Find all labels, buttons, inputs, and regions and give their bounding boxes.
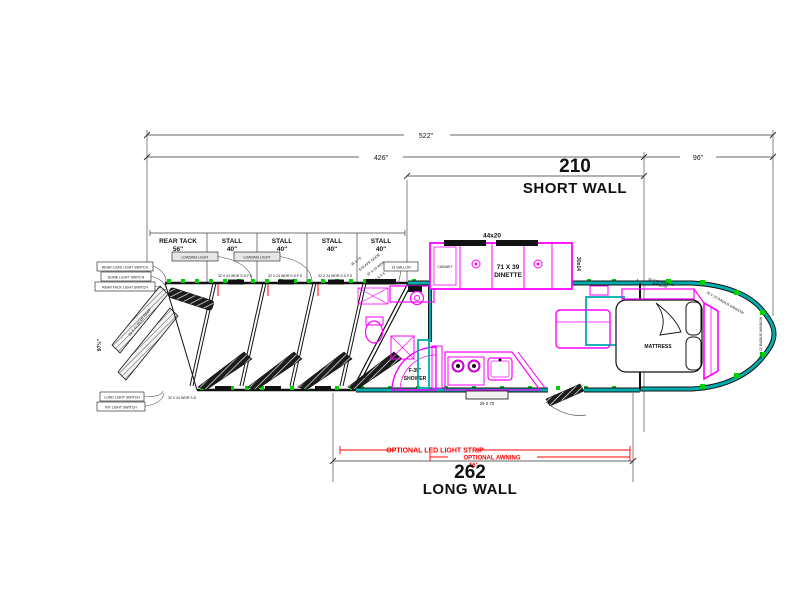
long-wall-value: 262 xyxy=(454,462,486,483)
nose-tip-window-note: 26 X 22 RADIUS WINDOW xyxy=(759,316,763,359)
bed-area xyxy=(616,289,718,379)
stall-header-labels: REAR TACK 56" STALL 40" STALL 40" STALL … xyxy=(159,238,391,253)
light-callout-label: LOADING LIGHT xyxy=(243,255,271,259)
column-label: STALL xyxy=(322,238,342,245)
column-width: 40" xyxy=(327,246,337,253)
dinette-label-1: 71 X 39 xyxy=(497,264,520,271)
entry-step-label: 29 X 70 xyxy=(480,401,495,406)
long-wall-label: LONG WALL xyxy=(423,481,518,498)
closet-label: CLOSET xyxy=(359,375,374,379)
column-label: STALL xyxy=(371,238,391,245)
water-tank-label: 13 GALLON xyxy=(391,265,411,269)
tie-markers-red xyxy=(218,284,318,296)
short-wall-value: 210 xyxy=(559,156,591,177)
column-width: 40" xyxy=(376,246,386,253)
optional-awning-label: OPTIONAL AWNING xyxy=(464,456,521,462)
stall-window-notes: 32 X 24 WDR S.S.F.S 32 X 24 WDR S.S.F.S … xyxy=(218,274,353,278)
column-label: STALL xyxy=(222,238,242,245)
column-label: STALL xyxy=(272,238,292,245)
trailer-floorplan-svg: 522" 426" 96" 210 SHORT WALL 97½" OPTION… xyxy=(0,0,800,600)
rear-ramp: 32 X 42 REAR RAMP xyxy=(112,286,178,380)
dim-rear-height: 97½" xyxy=(96,338,103,351)
light-callout-label: LOADING LIGHT xyxy=(181,255,209,259)
entry-door xyxy=(546,384,586,415)
column-label: REAR TACK xyxy=(159,238,197,245)
short-wall-label: SHORT WALL xyxy=(523,180,627,197)
optional-led-strip-line xyxy=(340,446,630,454)
shower-label-2: SHOWER xyxy=(404,376,427,382)
stall-divider-pads xyxy=(198,352,402,390)
rear-callouts-bottom: LOAD LIGHT SWITCH INT LIGHT SWITCH 32 X … xyxy=(97,391,197,411)
dim-overall: 522" xyxy=(419,133,434,140)
slide-cabinet-label: CABINET xyxy=(437,265,453,269)
slide-window-label: 30x14 xyxy=(575,257,581,271)
shower-label-1: F-35" xyxy=(409,368,422,374)
callout-label: REAR LOAD LIGHT SWITCH xyxy=(102,265,149,269)
mattress-label: MATTRESS xyxy=(644,344,672,350)
escape-note: 36 X 70 xyxy=(350,256,362,267)
callout-label: DOME LIGHT SWITCH xyxy=(108,275,145,279)
callout-label: LOAD LIGHT SWITCH xyxy=(104,395,140,399)
optional-led-strip-label: OPTIONAL LED LIGHT STRIP xyxy=(386,448,484,455)
sofa-and-closet xyxy=(556,286,624,348)
trailer-floorplan-page: 522" 426" 96" 210 SHORT WALL 97½" OPTION… xyxy=(0,0,800,600)
stall-window-note: 32 X 24 WDR S.S.F.S xyxy=(218,274,253,278)
dinette-label-2: DINETTE xyxy=(494,272,522,279)
stall-window-note: 32 X 24 WDR S.S.F.S xyxy=(268,274,303,278)
rear-window-note: 32 X 24 WDR S.S. xyxy=(168,396,197,400)
rear-callouts-top: REAR LOAD LIGHT SWITCH DOME LIGHT SWITCH… xyxy=(95,262,166,291)
dim-horse-section: 426" xyxy=(374,155,389,162)
callout-label: REAR TACK LIGHT SWITCH xyxy=(102,285,148,289)
slide-size-label: 44x20 xyxy=(483,233,501,240)
escape-door-notes: 36 X 70 ESCAPE DOOR 32 X 24 WDR S.S.F.S xyxy=(350,253,386,282)
stall-window-note: 32 X 24 WDR S.S.F.S xyxy=(318,274,353,278)
dim-gooseneck: 96" xyxy=(693,155,704,162)
rear-tack-saddle-rack xyxy=(168,287,215,311)
wall-markers-green xyxy=(167,281,638,388)
callout-label: INT LIGHT SWITCH xyxy=(105,405,137,409)
